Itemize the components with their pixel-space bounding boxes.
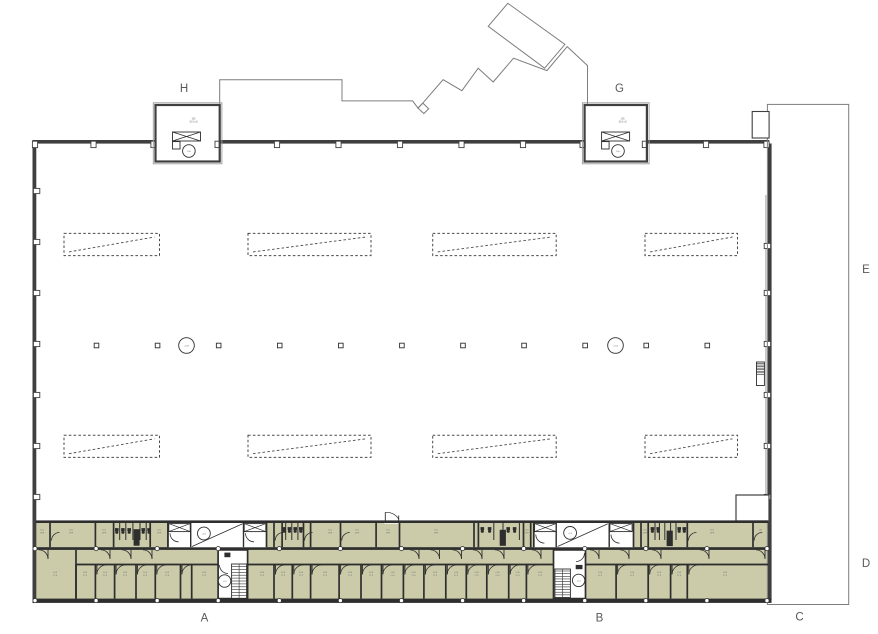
svg-text:OFF: OFF bbox=[328, 532, 333, 534]
svg-text:OFF: OFF bbox=[525, 532, 530, 534]
svg-text:E: E bbox=[862, 264, 870, 276]
svg-text:10.5 m2: 10.5 m2 bbox=[618, 121, 627, 123]
svg-text:OFF: OFF bbox=[102, 532, 107, 534]
svg-text:B: B bbox=[596, 613, 604, 625]
svg-text:OFF: OFF bbox=[355, 532, 360, 534]
svg-text:G: G bbox=[615, 83, 624, 95]
svg-text:H: H bbox=[180, 83, 188, 95]
svg-text:A: A bbox=[201, 613, 209, 625]
svg-text:105: 105 bbox=[621, 119, 626, 121]
svg-text:OFF: OFF bbox=[157, 532, 162, 534]
svg-text:D: D bbox=[862, 558, 870, 570]
svg-text:105: 105 bbox=[192, 119, 197, 121]
svg-text:OFF: OFF bbox=[386, 532, 391, 534]
svg-text:OFF: OFF bbox=[434, 532, 439, 534]
svg-text:+0.00: +0.00 bbox=[613, 346, 619, 348]
svg-text:+0.00: +0.00 bbox=[184, 346, 190, 348]
svg-text:OFF: OFF bbox=[758, 532, 763, 534]
svg-text:C: C bbox=[795, 612, 803, 624]
svg-text:OFF: OFF bbox=[643, 532, 648, 534]
svg-text:OFF: OFF bbox=[69, 532, 74, 534]
svg-text:OFF: OFF bbox=[710, 532, 715, 534]
svg-text:10.5 m2: 10.5 m2 bbox=[189, 121, 198, 123]
svg-text:OFF: OFF bbox=[40, 532, 45, 534]
